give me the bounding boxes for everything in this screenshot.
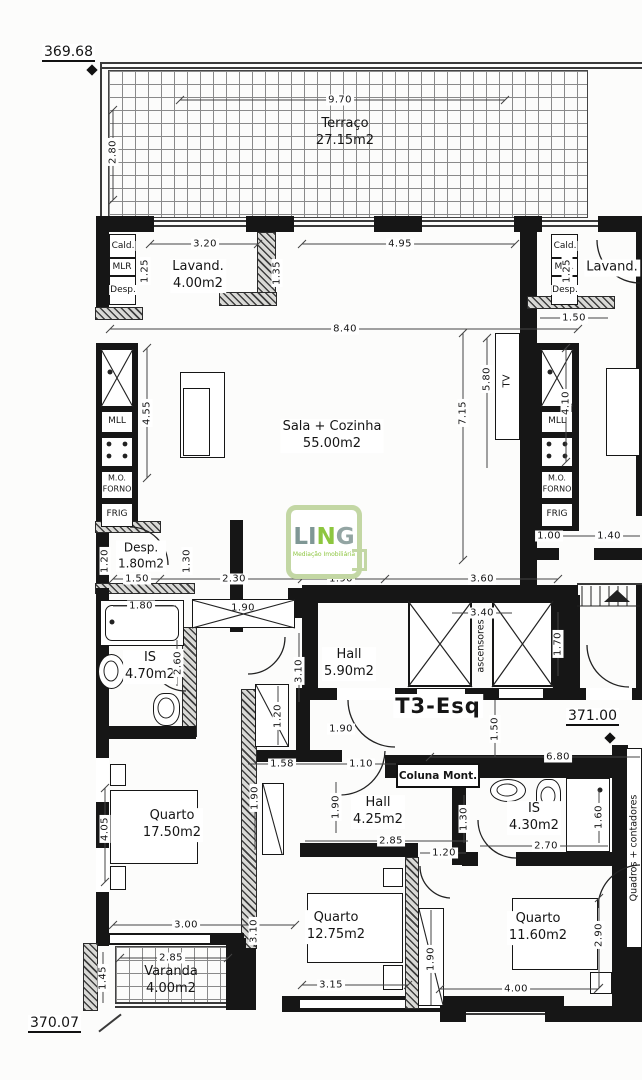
room-label-varanda: Varanda 4.00m2 — [142, 964, 200, 998]
room-area: 4.30m2 — [509, 818, 559, 835]
dim-label: 2.60 — [173, 649, 184, 677]
frig-label: FRIG — [106, 510, 127, 520]
dim-label: 3.10 — [294, 657, 305, 685]
dim-label: 1.20 — [430, 848, 458, 859]
room-area: 1.80m2 — [118, 556, 164, 572]
room-name: Quarto — [143, 808, 201, 825]
dim-label: 1.50 — [560, 313, 588, 324]
closet-diagonals — [192, 600, 443, 1005]
dim-label: 1.50 — [123, 574, 151, 585]
room-area: 5.90m2 — [324, 664, 374, 681]
dim-label: 1.10 — [347, 759, 375, 770]
dim-label: 1.20 — [100, 547, 111, 575]
dim-label: 1.35 — [272, 259, 283, 287]
dim-label: 1.80 — [127, 601, 155, 612]
dim-label: 1.60 — [594, 803, 605, 831]
room-area: 17.50m2 — [143, 825, 201, 842]
tv-label: TV — [502, 374, 513, 389]
mlr-label: MLR — [111, 262, 132, 272]
dim-label: 2.85 — [377, 836, 405, 847]
room-name: Lavand. — [586, 260, 638, 277]
dim-label: 1.25 — [140, 257, 151, 285]
room-name: Terraço — [316, 116, 374, 133]
dim-label: 1.45 — [98, 964, 109, 992]
room-label-is-small: IS 4.30m2 — [507, 801, 561, 835]
dim-label: 1.90 — [426, 945, 437, 973]
cald-label: Cald. — [553, 241, 578, 251]
dim-label: 1.90 — [229, 603, 257, 614]
room-area: 27.15m2 — [316, 133, 374, 150]
mll-label: MLL — [548, 417, 566, 427]
dim-label: 6.80 — [544, 752, 572, 763]
room-area: 12.75m2 — [307, 927, 365, 944]
cald-label: Cald. — [111, 241, 136, 251]
room-name: Hall — [324, 647, 374, 664]
floor-plan: Cald. MLR Desp. MLL M.O. FORNO FRIG TV C… — [0, 0, 642, 1080]
room-name: IS — [509, 801, 559, 818]
dim-label: 1.70 — [553, 630, 564, 658]
room-label-hall-main: Hall 5.90m2 — [322, 647, 376, 681]
forno-label: FORNO — [103, 486, 132, 495]
room-label-lavand-left: Lavand. 4.00m2 — [170, 259, 226, 293]
elevation-mid: 371.00 — [566, 708, 619, 726]
mo-label: M.O. — [548, 475, 566, 484]
room-name: Varanda — [144, 964, 198, 981]
dim-label: 8.40 — [331, 324, 359, 335]
room-area: 4.00m2 — [144, 981, 198, 998]
dim-label: 1.50 — [490, 715, 501, 743]
room-area: 4.25m2 — [353, 812, 403, 829]
dim-label: 3.00 — [172, 920, 200, 931]
room-name: Sala + Cozinha — [283, 419, 382, 436]
dim-label: 3.40 — [468, 608, 496, 619]
room-label-quarto-2: Quarto 12.75m2 — [305, 910, 367, 944]
dim-label: 3.60 — [468, 574, 496, 585]
desp-label: Desp. — [109, 285, 137, 295]
frig-label: FRIG — [546, 510, 567, 520]
forno-label: FORNO — [543, 486, 572, 495]
logo-brand: LING — [293, 526, 354, 549]
dim-label: 4.95 — [386, 239, 414, 250]
quadros-label: Quadros + contadores — [629, 794, 640, 903]
room-label-quarto-1: Quarto 17.50m2 — [141, 808, 203, 842]
dim-label: 4.55 — [142, 399, 153, 427]
room-name: Desp. — [118, 540, 164, 556]
room-label-sala: Sala + Cozinha 55.00m2 — [281, 419, 384, 453]
dim-label: 1.90 — [331, 793, 342, 821]
dim-label: 4.00 — [502, 984, 530, 995]
logo-letters-li: LI — [293, 524, 316, 550]
dim-label: 3.10 — [249, 917, 260, 945]
dim-label: 2.70 — [532, 841, 560, 852]
dim-label: 1.40 — [595, 531, 623, 542]
dim-label: 1.25 — [562, 257, 573, 285]
logo-tagline: Mediação Imobiliária — [293, 551, 355, 558]
dim-label: 1.90 — [327, 724, 355, 735]
mll-label: MLL — [108, 417, 126, 427]
dim-label: 9.70 — [326, 95, 354, 106]
dim-label: 1.30 — [459, 805, 470, 833]
logo-letter-g: G — [336, 524, 355, 550]
room-label-terraco: Terraço 27.15m2 — [314, 116, 376, 150]
room-label-quarto-3: Quarto 11.60m2 — [507, 911, 569, 945]
dim-label: 1.90 — [250, 784, 261, 812]
elevation-lower: 370.07 — [28, 1015, 81, 1033]
room-name: Quarto — [509, 911, 567, 928]
dim-label: 1.20 — [273, 702, 284, 730]
unit-label: T3-Esq — [393, 694, 483, 718]
dim-label: 7.15 — [458, 399, 469, 427]
dim-label: 4.05 — [100, 815, 111, 843]
dim-label: 1.30 — [182, 547, 193, 575]
logo-fragment — [352, 549, 367, 571]
dim-label: 3.20 — [191, 239, 219, 250]
dim-label: 2.90 — [594, 921, 605, 949]
room-label-lavand-right: Lavand. — [584, 260, 640, 277]
stairs — [577, 586, 640, 606]
desp-label: Desp. — [551, 285, 579, 295]
room-label-desp: Desp. 1.80m2 — [116, 540, 166, 571]
room-area: 11.60m2 — [509, 928, 567, 945]
ling-logo: LING Mediação Imobiliária — [286, 505, 362, 579]
dim-label: 2.80 — [108, 138, 119, 166]
dim-label: 2.30 — [220, 574, 248, 585]
coluna-mont-label: Coluna Mont. — [396, 763, 480, 788]
dim-label: 2.85 — [157, 953, 185, 964]
room-label-hall-small: Hall 4.25m2 — [351, 795, 405, 829]
dim-label: 1.58 — [268, 759, 296, 770]
dim-label: 4.10 — [561, 389, 572, 417]
mo-label: M.O. — [108, 475, 126, 484]
room-name: Quarto — [307, 910, 365, 927]
dim-label: 1.00 — [535, 531, 563, 542]
dim-label: 3.15 — [317, 980, 345, 991]
room-name: Lavand. — [172, 259, 224, 276]
room-name: Hall — [353, 795, 403, 812]
room-label-is-main: IS 4.70m2 — [123, 650, 177, 684]
elevation-upper: 369.68 — [42, 44, 95, 62]
room-area: 55.00m2 — [283, 436, 382, 453]
room-area: 4.70m2 — [125, 667, 175, 684]
room-area: 4.00m2 — [172, 276, 224, 293]
dim-label: 5.80 — [482, 365, 493, 393]
logo-letter-n: N — [317, 524, 336, 550]
ascensores-label: ascensores — [476, 618, 487, 673]
room-name: IS — [125, 650, 175, 667]
